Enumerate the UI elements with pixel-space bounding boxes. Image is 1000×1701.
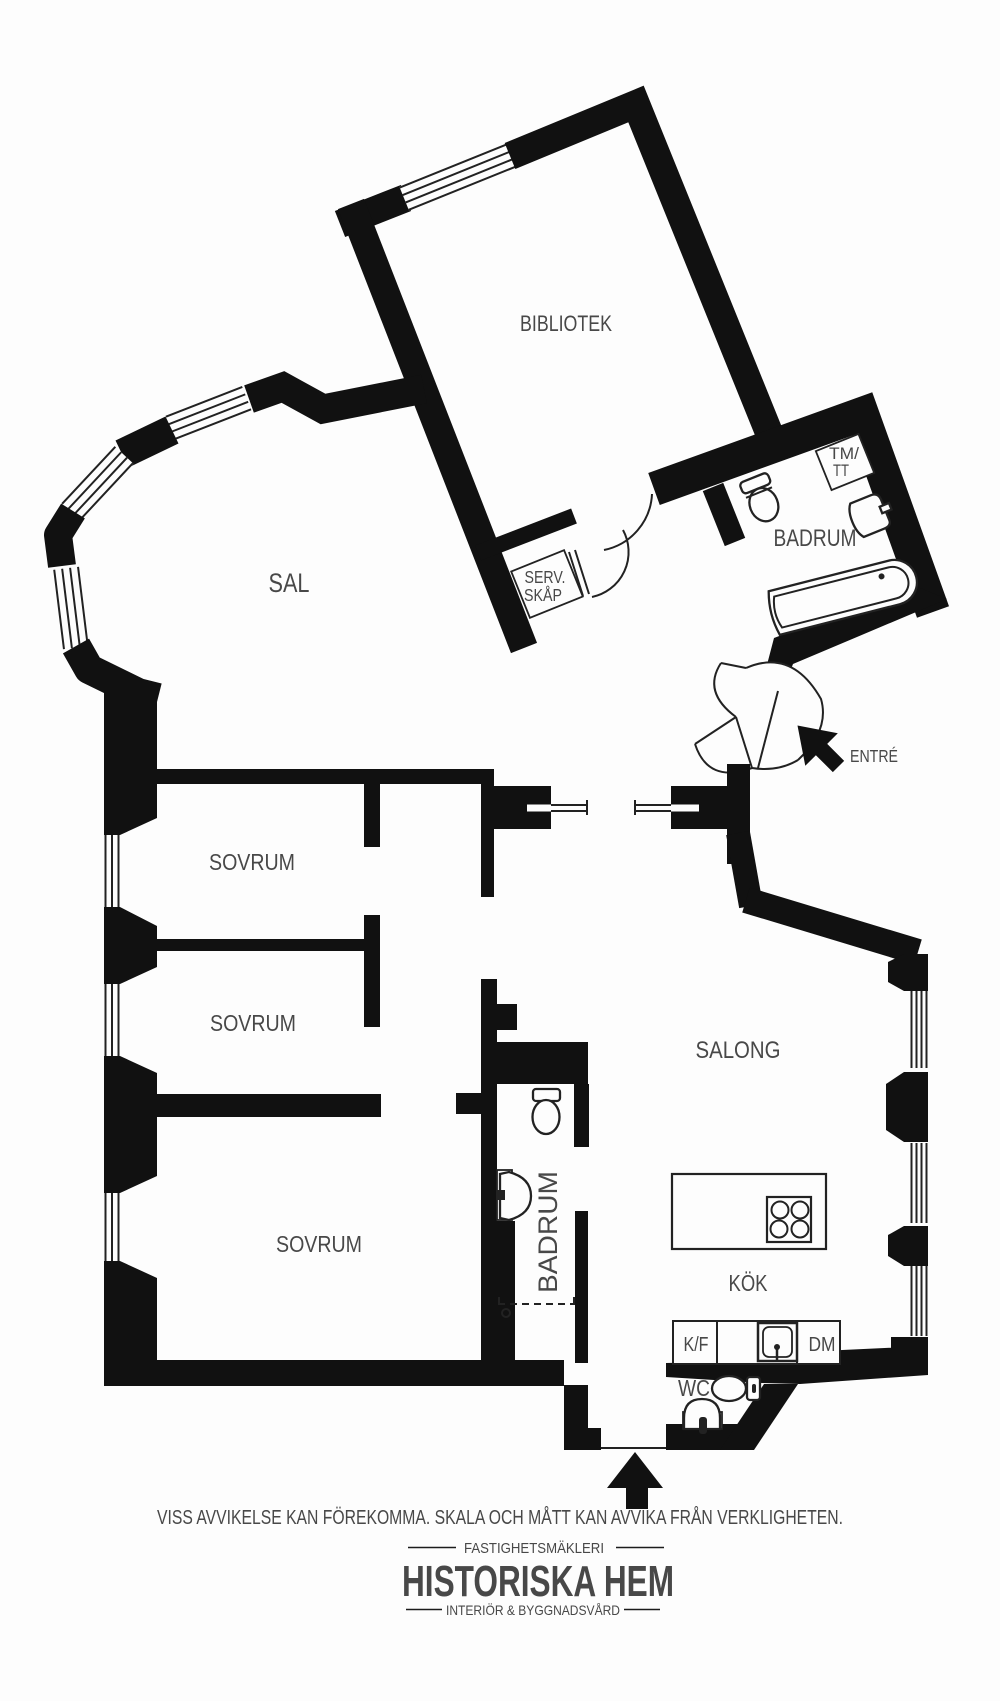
svg-text:SOVRUM: SOVRUM (210, 1010, 296, 1036)
svg-text:BADRUM: BADRUM (774, 525, 857, 552)
svg-text:K/F: K/F (684, 1334, 709, 1356)
svg-text:SAL: SAL (269, 568, 310, 598)
svg-text:WC: WC (678, 1375, 710, 1401)
svg-text:BADRUM: BADRUM (533, 1171, 563, 1293)
svg-text:SOVRUM: SOVRUM (209, 849, 295, 875)
svg-text:VISS AVVIKELSE KAN FÖREKOMMA.: VISS AVVIKELSE KAN FÖREKOMMA. SKALA OCH … (157, 1506, 843, 1529)
svg-text:KÖK: KÖK (729, 1270, 769, 1296)
svg-text:BIBLIOTEK: BIBLIOTEK (520, 311, 612, 336)
svg-text:SALONG: SALONG (696, 1037, 781, 1064)
svg-text:SOVRUM: SOVRUM (276, 1231, 362, 1257)
svg-text:FASTIGHETSMÄKLERI: FASTIGHETSMÄKLERI (464, 1540, 604, 1557)
svg-text:SERV.: SERV. (525, 567, 566, 587)
svg-text:ENTRÉ: ENTRÉ (850, 746, 898, 766)
svg-text:DM: DM (809, 1334, 836, 1356)
svg-text:SKÅP: SKÅP (524, 585, 562, 605)
svg-text:INTERIÖR & BYGGNADSVÅRD: INTERIÖR & BYGGNADSVÅRD (446, 1601, 620, 1618)
svg-text:TT: TT (833, 461, 849, 480)
svg-text:HISTORISKA HEM: HISTORISKA HEM (402, 1557, 674, 1606)
